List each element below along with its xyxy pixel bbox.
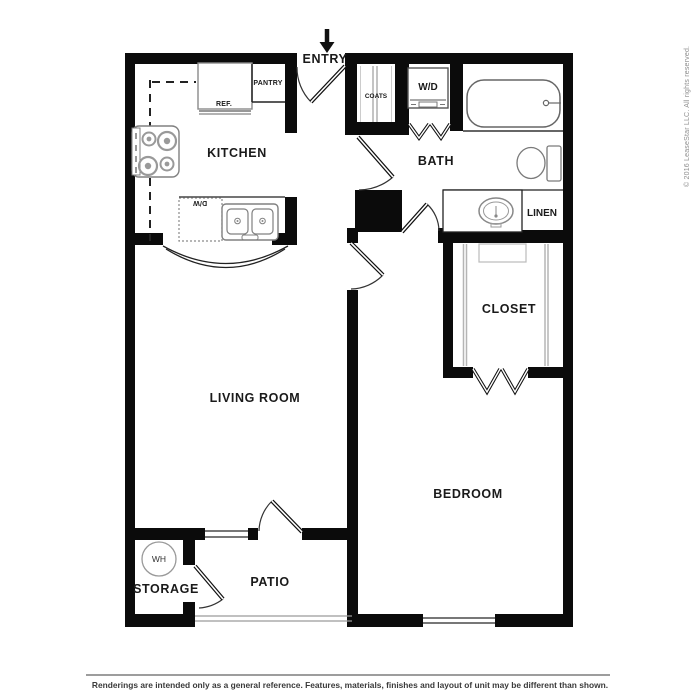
washer-dryer-label: W/D	[418, 82, 437, 93]
bedroom-label: BEDROOM	[433, 487, 502, 501]
entry-label: ENTRY	[303, 52, 348, 66]
bathtub-icon	[467, 80, 561, 127]
pantry-label: PANTRY	[253, 80, 282, 87]
patio-door-icon	[259, 501, 302, 532]
closet-label: CLOSET	[482, 302, 536, 316]
patio-railing-icon	[195, 616, 352, 621]
bath-door-icon	[358, 137, 393, 190]
copyright-watermark: © 2016 LeaseStar LLC. All rights reserve…	[683, 46, 691, 187]
coats-label: COATS	[365, 93, 388, 100]
kitchen-archway-curve	[163, 246, 288, 268]
closet-bifold-doors-icon	[473, 369, 528, 392]
living-room-door-icon	[351, 243, 383, 289]
closet-shelf-icon	[479, 244, 526, 262]
patio-label: PATIO	[250, 575, 289, 589]
footer-disclaimer: Renderings are intended only as a genera…	[92, 680, 608, 690]
entry-door-icon	[297, 66, 345, 102]
refrigerator-label: REF.	[216, 101, 232, 108]
bedroom-door-icon	[402, 204, 439, 232]
linen-label: LINEN	[527, 208, 557, 219]
footer: Renderings are intended only as a genera…	[86, 675, 610, 690]
living-room-window-icon	[205, 531, 248, 537]
entry-arrow-icon	[320, 29, 335, 53]
kitchen-sink-icon	[222, 204, 278, 240]
stove-icon	[132, 126, 179, 177]
washer-dryer-bifold-doors-icon	[409, 124, 450, 138]
dishwasher-label: D/W	[193, 199, 207, 206]
storage-label: STORAGE	[133, 582, 199, 596]
floor-plan-canvas: ENTRY KITCHEN PANTRY REF. D/W COATS W/D …	[0, 0, 697, 697]
toilet-icon	[517, 146, 561, 181]
floor-plan-page: ENTRY KITCHEN PANTRY REF. D/W COATS W/D …	[0, 0, 697, 697]
kitchen-label: KITCHEN	[207, 146, 267, 160]
water-heater-label: WH	[152, 554, 166, 564]
bath-label: BATH	[418, 154, 454, 168]
storage-door-icon	[195, 566, 223, 608]
living-room-label: LIVING ROOM	[210, 391, 301, 405]
windows	[195, 531, 495, 623]
walls	[125, 53, 573, 627]
bedroom-window-icon	[423, 618, 495, 623]
